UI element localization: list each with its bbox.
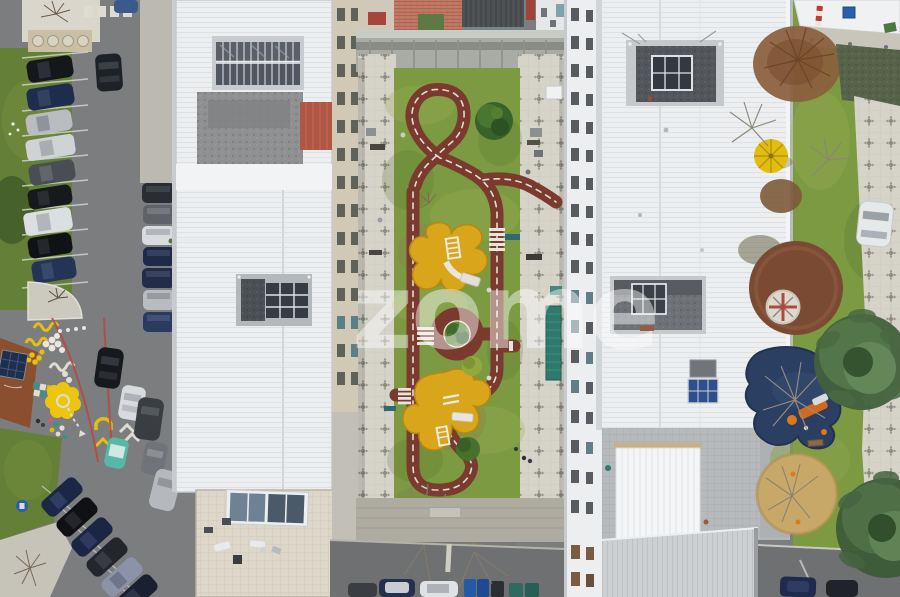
car: [114, 0, 138, 13]
compass-rose: [767, 291, 800, 324]
roof-skylight-box: [236, 274, 312, 326]
courtyard-south-paving: [356, 498, 584, 542]
recycling-bin: [464, 579, 476, 597]
ribbed-roof-south: [602, 528, 758, 597]
car-moving: [95, 53, 124, 92]
parked-cars-left-column: [23, 55, 78, 285]
roof-red-section: [300, 102, 334, 150]
terrace-skylight: [225, 490, 308, 527]
solar-panels: [688, 360, 718, 403]
red-awning: [368, 12, 386, 25]
dirt-patch-tree: [753, 26, 841, 102]
solar-panel-small: [0, 350, 28, 380]
left-sidewalk: [140, 0, 175, 183]
south-street: [330, 540, 564, 597]
aerial-photo: zome: [0, 0, 900, 597]
car-white-parked: [856, 200, 894, 247]
rooftop-structure-north: [622, 31, 724, 106]
left-building: [172, 0, 362, 597]
brown-patch: [760, 179, 802, 213]
bench-garden: [808, 439, 823, 446]
sand-area: [757, 454, 837, 534]
blue-rooftop-item: [843, 7, 855, 18]
watermark-text: zome: [352, 251, 658, 373]
parked-cars-right-column: [142, 183, 175, 332]
pedestrian: [36, 419, 40, 423]
rooftop-terrace: [196, 490, 336, 597]
aerial-photo-canvas: zome: [0, 0, 900, 597]
roof-skylight-band: [212, 36, 304, 90]
north-buildings: [362, 0, 588, 35]
